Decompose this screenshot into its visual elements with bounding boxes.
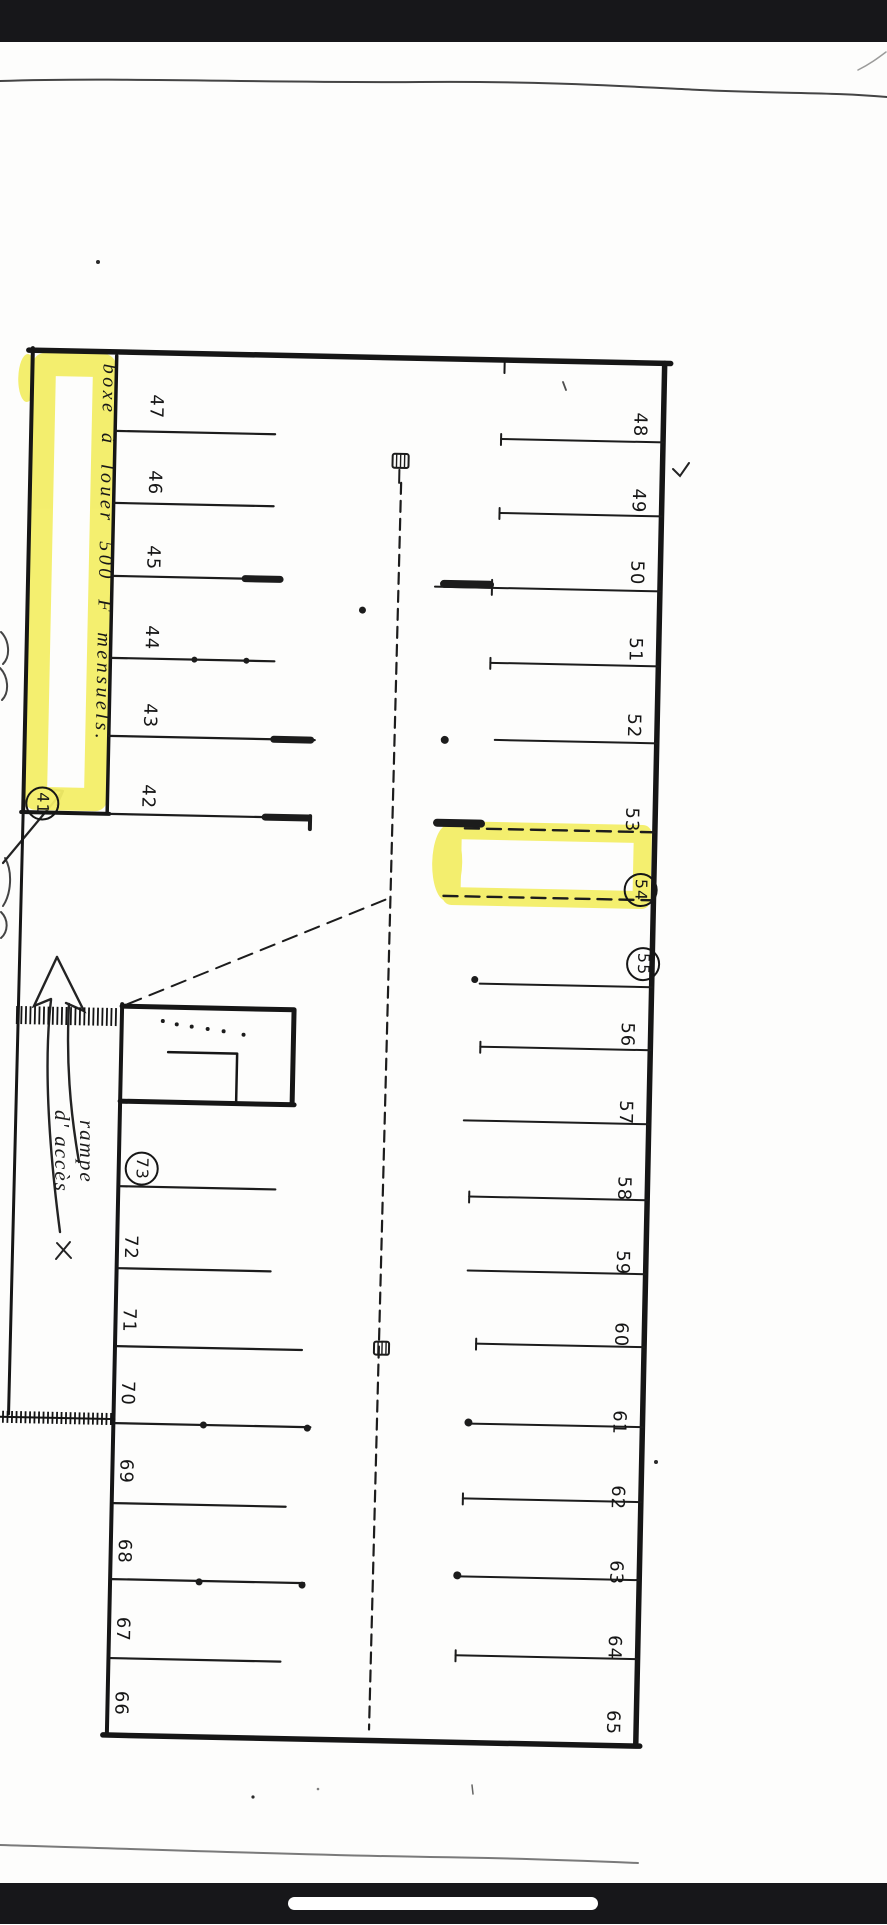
space-label-64: 64	[605, 1635, 624, 1660]
space-label-42: 42	[138, 784, 157, 809]
edge-scribble-lower	[1, 858, 10, 938]
space-label-66: 66	[111, 1691, 130, 1716]
space-label-63: 63	[606, 1560, 625, 1585]
edge-scribble-upper	[0, 632, 8, 700]
page-corner-mark	[858, 52, 886, 70]
space-label-68: 68	[114, 1539, 133, 1564]
space-label-71: 71	[119, 1308, 138, 1333]
space-label-43: 43	[140, 703, 159, 728]
space-label-55: 55	[626, 947, 661, 982]
space-label-61: 61	[609, 1410, 628, 1435]
parking-plan: boxe à louer 500 F mensuels. 47464544434…	[0, 342, 675, 1755]
space-label-52: 52	[624, 713, 643, 738]
space-label-46: 46	[145, 470, 164, 495]
space-label-62: 62	[608, 1485, 627, 1510]
status-bar	[0, 0, 887, 42]
space-label-58: 58	[614, 1176, 633, 1201]
space-label-60: 60	[611, 1322, 630, 1347]
space-label-65: 65	[603, 1710, 622, 1735]
space-label-49: 49	[629, 488, 648, 513]
space-label-53: 53	[622, 807, 641, 832]
space-label-69: 69	[116, 1459, 135, 1484]
space-label-70: 70	[118, 1381, 137, 1406]
handwritten-ramp-note: rampe d' accès	[49, 1110, 99, 1288]
space-label-57: 57	[616, 1100, 635, 1125]
space-label-41: 41	[25, 786, 60, 821]
phone-screenshot: { "plan": { "ink_color": "#1b1b1b", "hig…	[0, 0, 887, 1924]
space-label-56: 56	[617, 1022, 636, 1047]
gesture-bar	[0, 1883, 887, 1924]
space-label-48: 48	[630, 412, 649, 437]
space-label-47: 47	[146, 394, 165, 419]
check-mark	[673, 463, 689, 476]
space-label-59: 59	[613, 1250, 632, 1275]
space-label-73: 73	[124, 1151, 159, 1186]
space-label-54: 54	[623, 873, 658, 908]
stray-tick	[472, 1785, 473, 1794]
ramp-note-line2: d' accès	[49, 1110, 74, 1288]
space-label-67: 67	[113, 1617, 132, 1642]
ramp-note-line1: rampe	[74, 1110, 99, 1288]
page-bottom-crease	[0, 1845, 638, 1863]
space-label-50: 50	[627, 560, 646, 585]
page-top-crease	[0, 80, 887, 97]
space-label-45: 45	[143, 545, 162, 570]
home-indicator[interactable]	[288, 1897, 598, 1910]
space-label-51: 51	[625, 637, 644, 662]
space-label-44: 44	[142, 625, 161, 650]
scanned-document: boxe à louer 500 F mensuels. 47464544434…	[0, 42, 887, 1883]
space-label-72: 72	[121, 1235, 140, 1260]
